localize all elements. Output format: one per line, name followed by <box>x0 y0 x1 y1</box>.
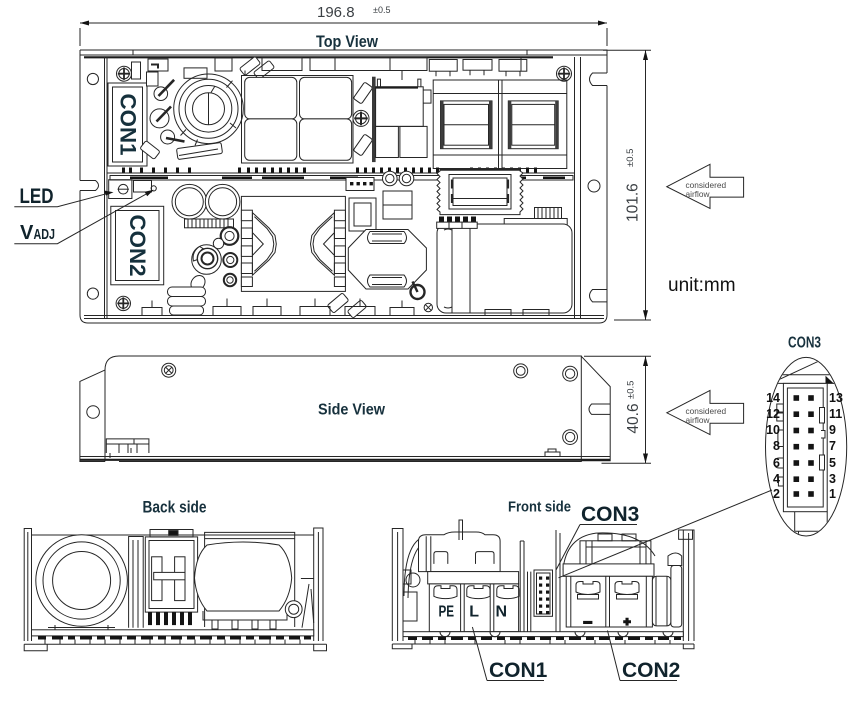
svg-text:L: L <box>469 603 479 620</box>
svg-text:unit:mm: unit:mm <box>668 275 736 296</box>
svg-text:5: 5 <box>829 456 836 470</box>
svg-text:airflow: airflow <box>686 189 711 199</box>
svg-text:CON2: CON2 <box>622 659 680 682</box>
svg-text:Top View: Top View <box>316 33 378 51</box>
svg-text:1: 1 <box>829 487 836 501</box>
svg-text:2: 2 <box>773 487 780 501</box>
svg-text:CON1: CON1 <box>489 659 548 682</box>
svg-text:N: N <box>496 603 508 620</box>
svg-text:Front side: Front side <box>508 499 571 516</box>
svg-text:6: 6 <box>773 456 780 470</box>
svg-text:40.6: 40.6 <box>625 403 642 433</box>
svg-text:ADJ: ADJ <box>34 227 56 243</box>
svg-text:±0.5: ±0.5 <box>626 381 637 399</box>
svg-text:±0.5: ±0.5 <box>373 5 390 15</box>
svg-text:V: V <box>20 222 34 244</box>
svg-text:4: 4 <box>773 472 780 486</box>
svg-text:11: 11 <box>829 407 842 421</box>
svg-text:10: 10 <box>766 423 780 437</box>
svg-text:196.8: 196.8 <box>317 4 355 21</box>
svg-text:13: 13 <box>829 391 843 405</box>
svg-text:7: 7 <box>829 439 836 453</box>
svg-text:CON3: CON3 <box>788 335 821 352</box>
svg-text:12: 12 <box>766 407 780 421</box>
svg-text:±0.5: ±0.5 <box>625 149 636 167</box>
svg-text:PE: PE <box>439 603 455 620</box>
svg-text:Side View: Side View <box>318 402 385 419</box>
svg-text:9: 9 <box>829 423 836 437</box>
svg-text:101.6: 101.6 <box>625 183 642 222</box>
svg-text:CON2: CON2 <box>125 215 150 277</box>
svg-text:CON3: CON3 <box>581 503 639 526</box>
svg-text:airflow: airflow <box>686 415 711 425</box>
svg-text:LED: LED <box>20 185 54 208</box>
svg-text:14: 14 <box>766 391 780 405</box>
svg-text:Back side: Back side <box>143 499 207 517</box>
svg-text:8: 8 <box>773 439 780 453</box>
svg-text:3: 3 <box>829 472 836 486</box>
svg-text:CON1: CON1 <box>116 94 141 156</box>
